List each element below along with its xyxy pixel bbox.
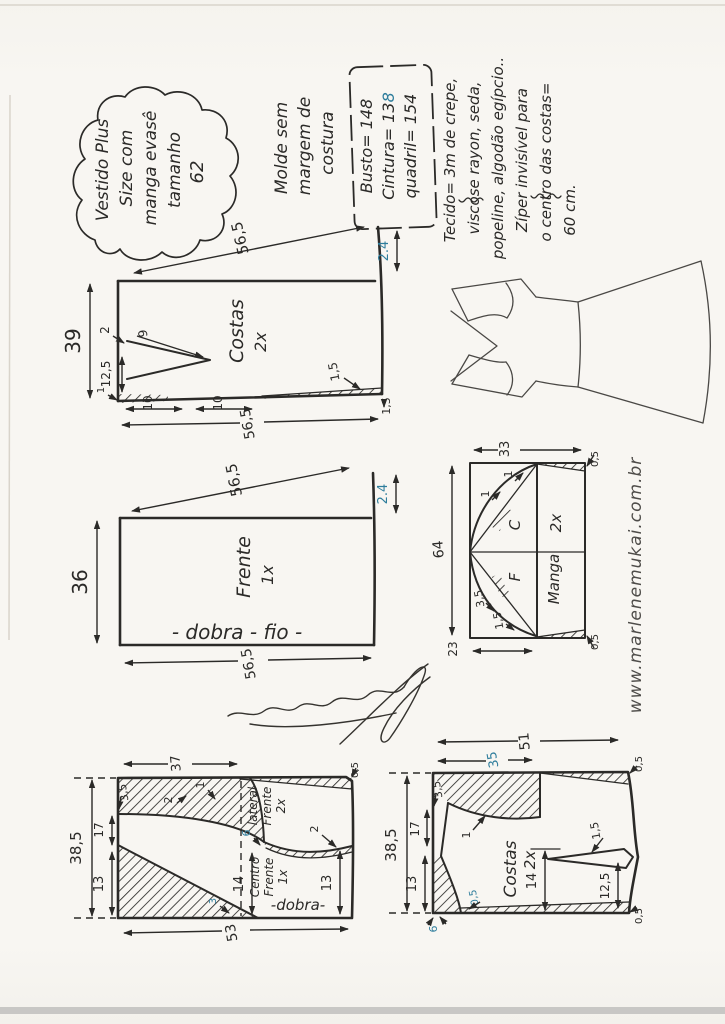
skirt-back-s2-value: 17 xyxy=(408,821,422,836)
skirt-back-yoke-hatch xyxy=(433,773,540,819)
cloud-line-2: Size com xyxy=(117,130,137,207)
skirt-front-hem-dim-left xyxy=(124,931,222,933)
measure-cintura: Cintura= 138 xyxy=(379,92,398,200)
pattern-drawing: Vestido Plus Size com manga evasê tamanh… xyxy=(0,0,725,1024)
sleeve-label: Manga xyxy=(545,554,563,604)
bodice-back-neckdrop-value: 2.4 xyxy=(377,241,392,262)
bodice-back-hemcurve-arrow xyxy=(344,378,360,389)
skirt-front-side-label-2: Frente xyxy=(260,787,274,826)
bodice-back-dart-intake-value: 2 xyxy=(98,326,112,334)
sketch-skirt-top xyxy=(578,261,701,302)
skirt-front-center-label-3: 1x xyxy=(276,869,290,885)
skirt-front-side-label-3: 2x xyxy=(274,798,288,814)
skirt-back-length-value: 38,5 xyxy=(382,828,400,861)
sketch-back-armhole xyxy=(468,315,507,321)
sleeve-width-value: 64 xyxy=(430,540,447,559)
skirt-back-corner-hatch xyxy=(433,856,461,913)
piece-bodice-front: 56,5 2.4 36 Frente 1x - dobra - fio - 56… xyxy=(68,462,396,681)
bodice-back-hem-dim-left xyxy=(122,423,240,425)
skirt-back-blue6-value: 6 xyxy=(427,926,440,933)
body-measures-box: Busto= 148 Cintura= 138 quadril= 154 xyxy=(349,65,437,230)
fabric-line-6: 60 cm. xyxy=(561,184,579,235)
sleeve-outline xyxy=(470,463,585,638)
skirt-front-s2-value: 17 xyxy=(92,822,106,837)
skirt-front-hem-value: 53 xyxy=(223,923,242,943)
sleeve-n3-value: 3,5 xyxy=(472,589,488,608)
bodice-back-hem-dim-right xyxy=(264,419,378,422)
bodice-front-length-value: 36 xyxy=(68,569,92,594)
sleeve-front-letter: F xyxy=(506,572,524,581)
skirt-front-s3-value: 13 xyxy=(92,876,107,893)
sleeve-n2-value: 1 xyxy=(479,491,492,498)
skirt-back-waist-arrow xyxy=(473,816,485,830)
skirt-back-label: Costas xyxy=(501,840,521,897)
sleeve-back-letter: C xyxy=(506,519,524,530)
bodice-back-seg1-value: 10 xyxy=(141,395,155,410)
sleeve-qty: 2x xyxy=(547,514,565,533)
bodice-back-label: Costas xyxy=(226,299,248,363)
sleeve-cap-chords xyxy=(470,464,537,636)
skirt-back-waist-value: 1 xyxy=(460,832,473,839)
skirt-back-corner-tr-value: 0,5 xyxy=(634,756,645,772)
skirt-back-dart-value: 1,5 xyxy=(588,821,604,840)
signature-stroke-2 xyxy=(381,667,430,742)
measure-cintura-last-digit: 8 xyxy=(379,92,398,102)
sleeve-n1-value: 1 xyxy=(502,471,515,478)
piece-sleeve: 33 64 23 1 1 3,5 1,5 C F 2x Manga 0,5 0,… xyxy=(430,441,601,657)
skirt-back-top-wedge-hatch xyxy=(540,772,628,784)
bodice-back-hem-value: 56,5 xyxy=(237,407,258,440)
skirt-front-blue6-value: 6 xyxy=(240,830,253,837)
sketch-front-sleeve xyxy=(452,381,536,397)
dress-sketch xyxy=(451,261,710,423)
fabric-note: Tecido= 3m de crepe, viscose rayon, seda… xyxy=(441,57,579,260)
skirt-back-top-value: 51 xyxy=(516,732,533,751)
bodice-back-corner-value: 1 xyxy=(96,387,107,393)
skirt-front-waist1-value: 1 xyxy=(194,782,207,789)
title-cloud: Vestido Plus Size com manga evasê tamanh… xyxy=(73,87,238,260)
skirt-front-right-value: 13 xyxy=(320,875,335,892)
sleeve-bottom-value: 23 xyxy=(446,641,460,656)
cloud-line-4: tamanho xyxy=(165,132,185,208)
sketch-waist-seam xyxy=(578,302,580,387)
sleeve-top-value: 33 xyxy=(498,441,513,458)
bodice-front-hem-value: 56,5 xyxy=(238,647,259,680)
fabric-line-1: Tecido= 3m de crepe, xyxy=(441,78,459,243)
skirt-back-right-value: 12,5 xyxy=(598,873,612,900)
skirt-back-blue6-arrow-a xyxy=(428,918,433,925)
bodice-front-neckdrop-value: 2.4 xyxy=(376,484,391,505)
bodice-back-corner-arrow xyxy=(108,395,117,400)
measure-busto: Busto= 148 xyxy=(357,99,376,194)
no-seam-allowance-note: Molde sem margem de costura xyxy=(272,97,338,195)
skirt-front-top-value: 37 xyxy=(168,754,184,772)
skirt-back-mid-value: 14 xyxy=(525,873,540,890)
scanned-sewing-pattern-page: Vestido Plus Size com manga evasê tamanh… xyxy=(0,0,725,1024)
watermark-url: www.marlenemukai.com.br xyxy=(626,457,646,714)
bodice-front-label: Frente xyxy=(233,536,255,598)
skirt-front-waist2-value: 2 xyxy=(162,797,175,804)
signature-stroke-1 xyxy=(228,687,404,716)
skirt-front-center-label-2: Frente xyxy=(262,858,276,897)
fabric-line-3: popeline, algodão egípcio.. xyxy=(489,57,507,260)
piece-skirt-back: 51 35 0,5 38,5 3,5 17 13 1 1,5 12,5 14 C… xyxy=(382,732,645,933)
skirt-back-dart xyxy=(548,849,633,868)
bodice-front-hem-dim-left xyxy=(125,661,238,663)
cloud-line-3: manga evasê xyxy=(141,111,161,226)
sleeve-cap-curve xyxy=(470,464,537,636)
skirt-back-s3-value: 13 xyxy=(405,876,420,893)
skirt-back-blue6-arrow-b xyxy=(440,917,446,924)
skirt-front-mid-value: 14 xyxy=(232,876,247,893)
bodice-back-shoulder-value: 56,5 xyxy=(228,220,253,257)
sketch-back-shoulder xyxy=(452,289,468,321)
skirt-front-side-label-1: lateral xyxy=(246,786,260,825)
sketch-back-sleeve xyxy=(452,279,536,297)
bodice-front-qty: 1x xyxy=(258,565,277,585)
skirt-back-blue05-value: 0,5 xyxy=(468,889,482,907)
bodice-front-hem-dim-right xyxy=(268,658,371,660)
measure-quadril: quadril= 154 xyxy=(401,94,420,199)
signature-stroke-3 xyxy=(340,664,428,744)
skirt-back-qty: 2x xyxy=(521,851,539,870)
bodice-back-seg2-value: 10 xyxy=(211,395,225,410)
cloud-size-number: 62 xyxy=(187,161,208,184)
skirt-front-hip-arrow xyxy=(322,835,336,847)
skirt-front-hip-value: 2 xyxy=(308,826,321,833)
sleeve-corner-bottom-value: 0,5 xyxy=(590,634,601,650)
molde-line-3: costura xyxy=(318,111,338,174)
skirt-front-length-value: 38,5 xyxy=(67,831,85,864)
sketch-bodice-top xyxy=(536,297,578,302)
measure-cintura-main: Cintura= 13 xyxy=(379,102,398,199)
piece-skirt-front: 37 0,5 38,5 3,5 17 13 1 2 6 2 3 14 13 53… xyxy=(67,754,361,942)
fabric-line-2: viscose rayon, seda, xyxy=(465,81,483,234)
molde-line-2: margem de xyxy=(295,97,315,195)
bodice-front-fold-label: - dobra - fio - xyxy=(172,620,302,644)
bodice-back-hemcorner-value: 1,5 xyxy=(380,397,393,415)
skirt-front-hem-dim-right xyxy=(250,929,348,930)
sketch-neckline-v xyxy=(451,311,497,381)
skirt-front-fold-label: -dobra- xyxy=(271,896,325,914)
fabric-line-4: Zíper invisível para xyxy=(513,88,531,233)
bodice-back-length-value: 39 xyxy=(61,328,85,353)
signature-stroke-4 xyxy=(250,713,396,727)
bodice-front-right-edge xyxy=(373,473,375,645)
scan-edge-bottom xyxy=(0,1007,725,1014)
molde-line-1: Molde sem xyxy=(272,102,292,194)
skirt-back-top-dim-right xyxy=(540,740,618,741)
bodice-back-dartpos-value: 12,5 xyxy=(99,361,113,388)
skirt-back-corner-br-value: 0,5 xyxy=(634,908,645,924)
sketch-back-cuff xyxy=(506,283,513,318)
skirt-front-blue3-value: 3 xyxy=(208,898,219,904)
scan-crease-left xyxy=(9,95,10,640)
cloud-line-1: Vestido Plus xyxy=(93,119,113,222)
skirt-front-center-label-1: Centro xyxy=(248,857,262,897)
sketch-front-armhole xyxy=(469,355,506,362)
sketch-bodice-bottom xyxy=(536,381,578,387)
bodice-back-hemcurve-value: 1,5 xyxy=(326,361,343,382)
sleeve-n4-value: 1,5 xyxy=(491,611,507,630)
sketch-skirt-bottom xyxy=(578,387,703,423)
skirt-back-top-dim-left xyxy=(438,741,518,742)
bodice-back-qty: 2x xyxy=(251,332,270,352)
sketch-front-cuff xyxy=(506,362,513,395)
sleeve-rect xyxy=(470,463,585,638)
bodice-back-hem-hatch-right xyxy=(262,388,382,399)
fabric-line-5: o centro das costas= xyxy=(537,83,555,242)
skirt-back-yoke-value: 35 xyxy=(485,750,503,769)
sketch-hem xyxy=(701,261,710,423)
